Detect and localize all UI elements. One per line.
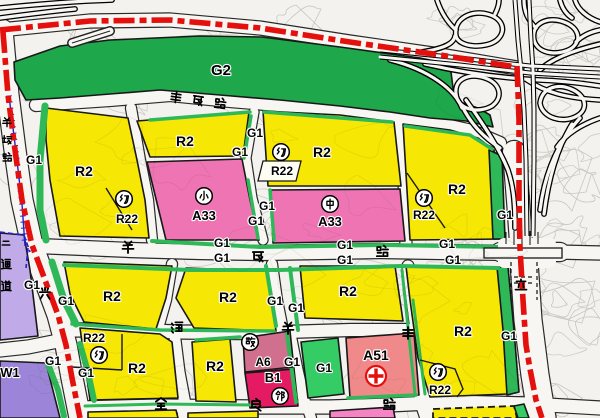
svg-text:R2: R2 xyxy=(454,323,472,339)
svg-text:A33: A33 xyxy=(192,208,216,223)
svg-text:G1: G1 xyxy=(214,251,230,265)
svg-text:G1: G1 xyxy=(214,236,230,250)
svg-text:R2: R2 xyxy=(448,181,466,197)
svg-text:G1: G1 xyxy=(259,199,275,213)
svg-text:R2: R2 xyxy=(339,283,357,299)
svg-text:R2: R2 xyxy=(128,360,146,376)
svg-text:R2: R2 xyxy=(313,144,331,160)
svg-text:G1: G1 xyxy=(337,238,353,252)
svg-text:G1: G1 xyxy=(288,301,304,315)
svg-text:G1: G1 xyxy=(284,355,300,369)
svg-text:G1: G1 xyxy=(232,145,248,159)
svg-text:A51: A51 xyxy=(363,347,389,363)
svg-text:G1: G1 xyxy=(45,354,61,368)
svg-text:R2: R2 xyxy=(103,288,121,304)
svg-text:G1: G1 xyxy=(78,366,94,380)
svg-text:A6: A6 xyxy=(255,355,271,369)
svg-text:G2: G2 xyxy=(211,62,231,79)
svg-text:R22: R22 xyxy=(271,164,293,178)
svg-text:G1: G1 xyxy=(337,253,353,267)
svg-text:G1: G1 xyxy=(247,126,263,140)
svg-text:G1: G1 xyxy=(248,214,264,228)
svg-text:R22: R22 xyxy=(116,212,138,226)
svg-text:R2: R2 xyxy=(75,163,93,179)
svg-text:G1: G1 xyxy=(58,294,74,308)
svg-text:G1: G1 xyxy=(497,208,513,222)
svg-text:G1: G1 xyxy=(267,294,283,308)
svg-text:B1: B1 xyxy=(265,370,282,385)
svg-text:A33: A33 xyxy=(318,214,342,229)
svg-text:W1: W1 xyxy=(0,365,20,380)
svg-text:G1: G1 xyxy=(24,278,40,292)
svg-text:R2: R2 xyxy=(206,358,224,374)
svg-text:G1: G1 xyxy=(316,361,332,375)
svg-text:G1: G1 xyxy=(439,237,455,251)
svg-text:R22: R22 xyxy=(413,208,435,222)
svg-text:G1: G1 xyxy=(445,253,461,267)
svg-text:R22: R22 xyxy=(429,383,451,397)
svg-text:R2: R2 xyxy=(219,289,237,305)
svg-text:G1: G1 xyxy=(26,153,42,167)
svg-text:G1: G1 xyxy=(501,329,517,343)
svg-text:R2: R2 xyxy=(176,133,194,149)
svg-text:R22: R22 xyxy=(83,331,105,345)
